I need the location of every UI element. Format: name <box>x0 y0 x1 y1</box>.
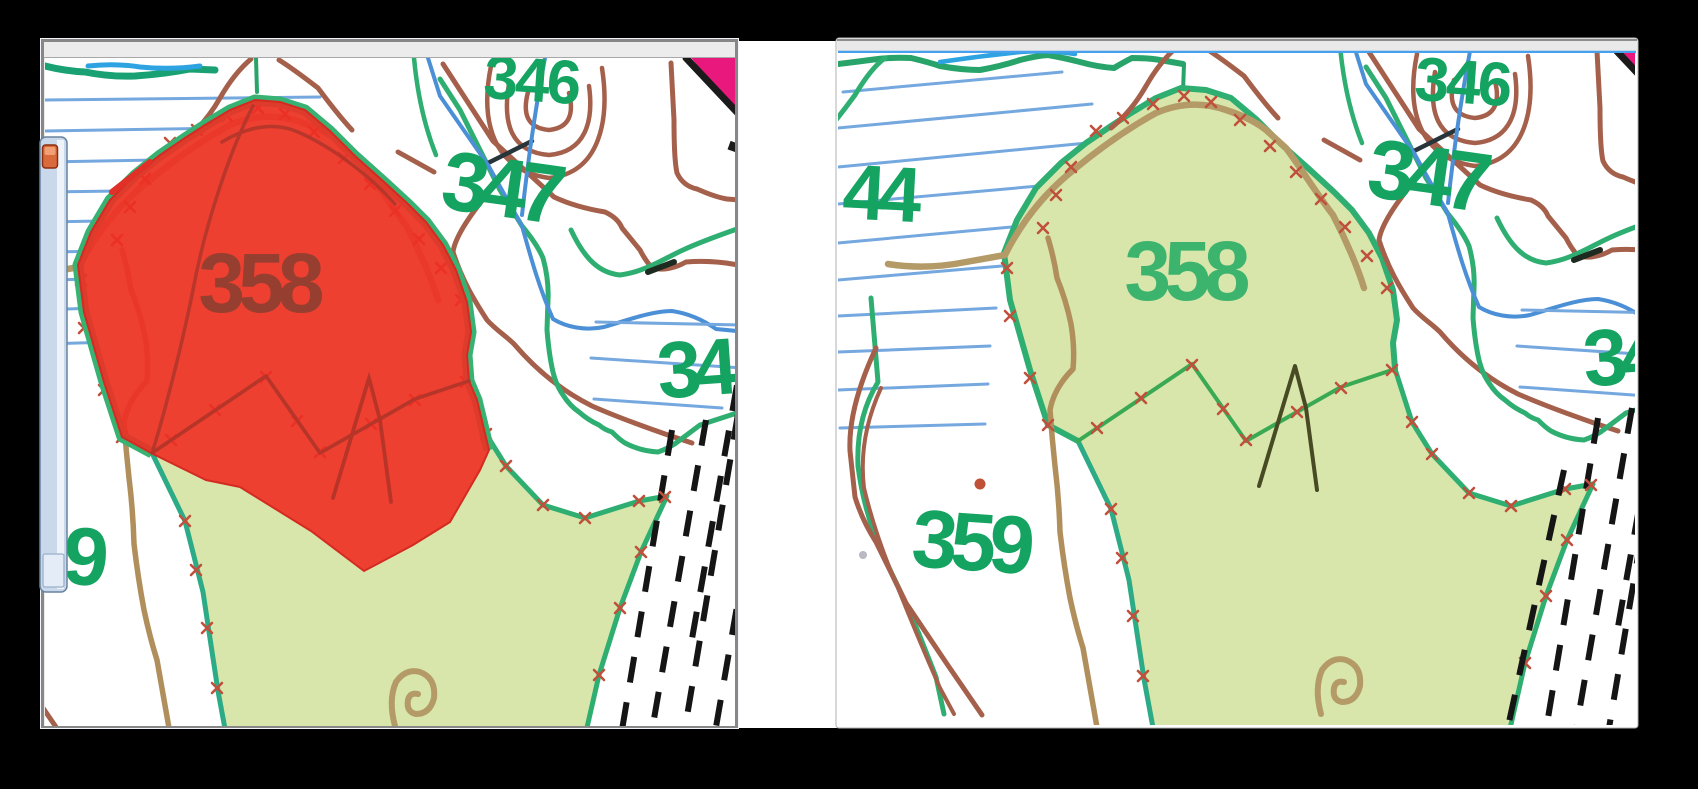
svg-text:358: 358 <box>198 236 322 330</box>
svg-text:346: 346 <box>1413 45 1514 121</box>
